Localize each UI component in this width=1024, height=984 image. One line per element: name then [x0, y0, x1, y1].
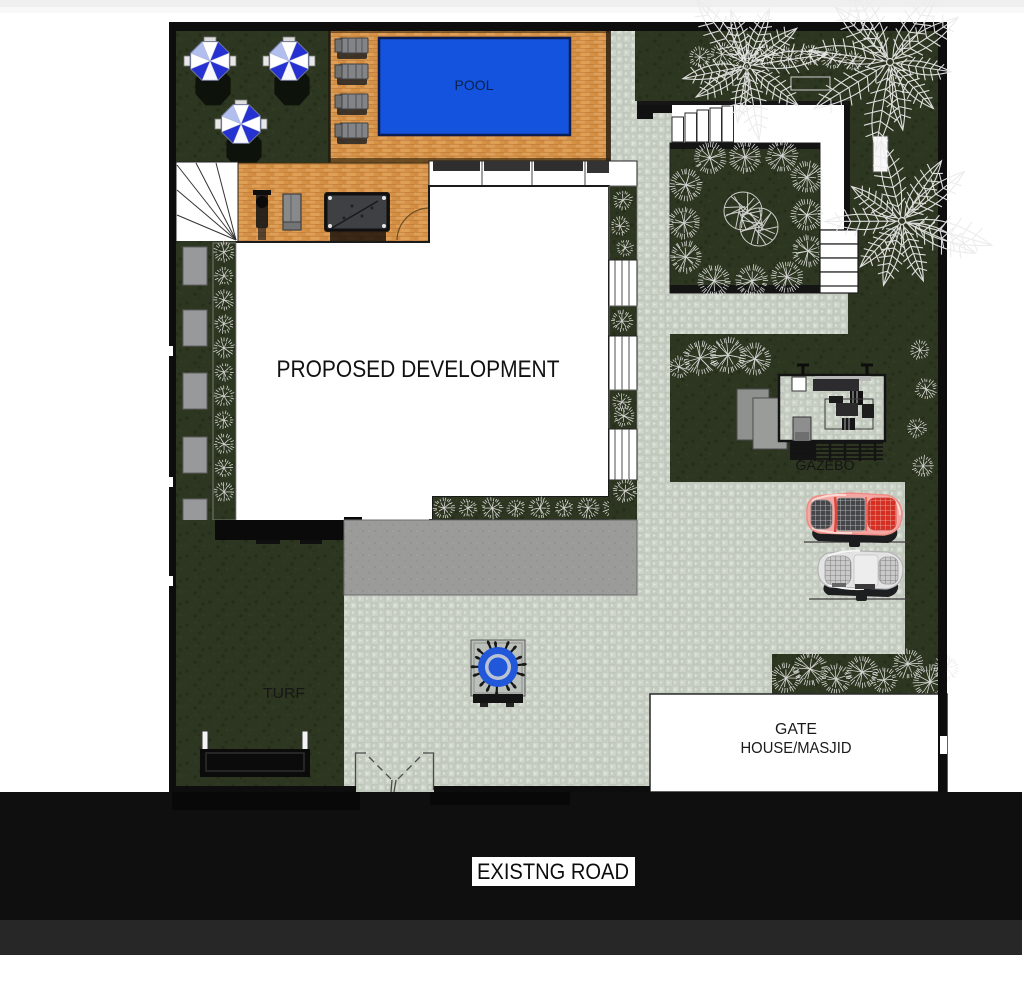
svg-text:POOL: POOL	[455, 77, 494, 93]
svg-text:HOUSE/MASJID: HOUSE/MASJID	[741, 740, 852, 757]
svg-text:EXISTNG ROAD: EXISTNG ROAD	[477, 859, 629, 884]
svg-text:GATE: GATE	[775, 721, 817, 738]
svg-text:TURF: TURF	[263, 685, 305, 702]
svg-text:GAZEBO: GAZEBO	[796, 458, 855, 473]
svg-text:PROPOSED DEVELOPMENT: PROPOSED DEVELOPMENT	[277, 356, 560, 383]
